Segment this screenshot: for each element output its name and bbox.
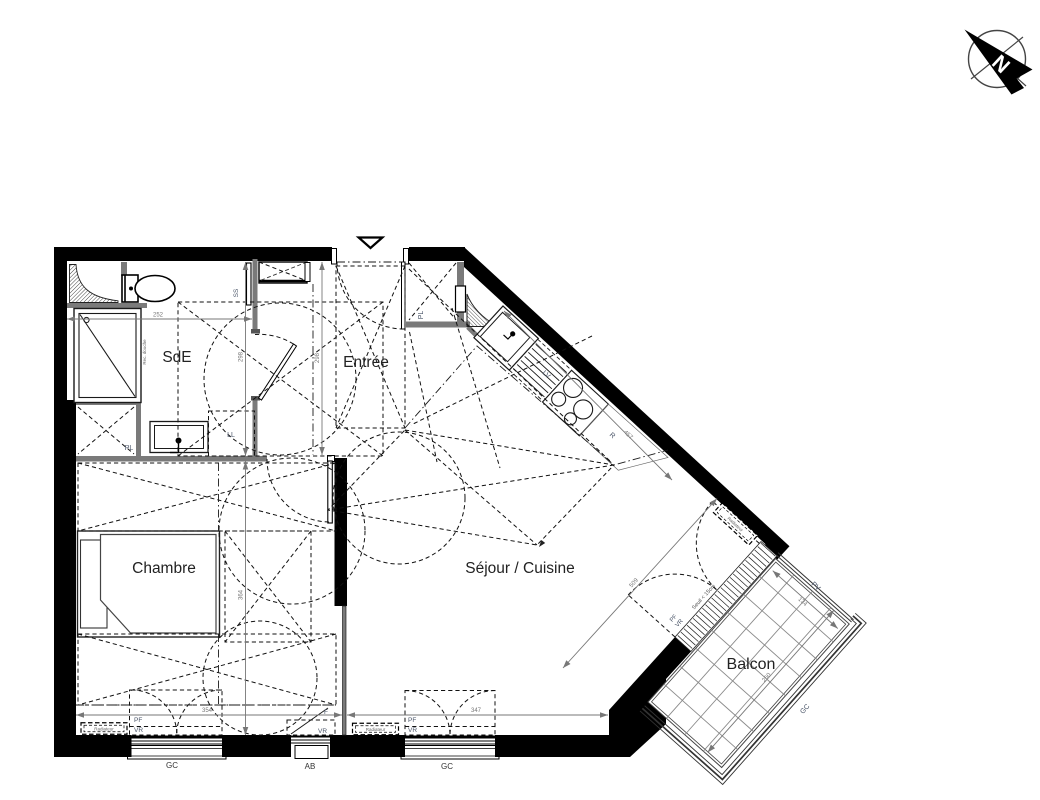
svg-text:VR: VR: [408, 727, 417, 734]
svg-text:Balcon: Balcon: [727, 656, 776, 673]
svg-text:PF: PF: [408, 717, 416, 724]
svg-text:SdE: SdE: [162, 349, 191, 366]
svg-text:PL: PL: [125, 445, 134, 452]
svg-text:AB: AB: [305, 762, 316, 771]
svg-text:Radiateur: Radiateur: [94, 726, 114, 731]
svg-text:PL: PL: [418, 311, 425, 320]
svg-text:354: 354: [202, 708, 213, 714]
svg-text:Rec. douche: Rec. douche: [142, 339, 147, 365]
svg-text:252: 252: [153, 313, 164, 319]
svg-text:VR: VR: [134, 727, 143, 734]
svg-text:298: 298: [239, 351, 245, 362]
svg-text:GC: GC: [166, 761, 178, 770]
svg-text:347: 347: [471, 708, 482, 714]
svg-text:LL: LL: [227, 432, 235, 439]
svg-text:SS: SS: [233, 288, 240, 297]
svg-text:298: 298: [315, 352, 321, 363]
svg-text:Entrée: Entrée: [343, 354, 389, 371]
svg-text:Séjour / Cuisine: Séjour / Cuisine: [465, 560, 574, 577]
svg-text:GC: GC: [441, 762, 453, 771]
svg-text:PF: PF: [134, 717, 142, 724]
svg-text:Chambre: Chambre: [132, 560, 196, 577]
svg-text:Radiateur: Radiateur: [366, 727, 386, 732]
svg-text:364: 364: [239, 589, 245, 600]
svg-text:VR: VR: [318, 728, 327, 735]
